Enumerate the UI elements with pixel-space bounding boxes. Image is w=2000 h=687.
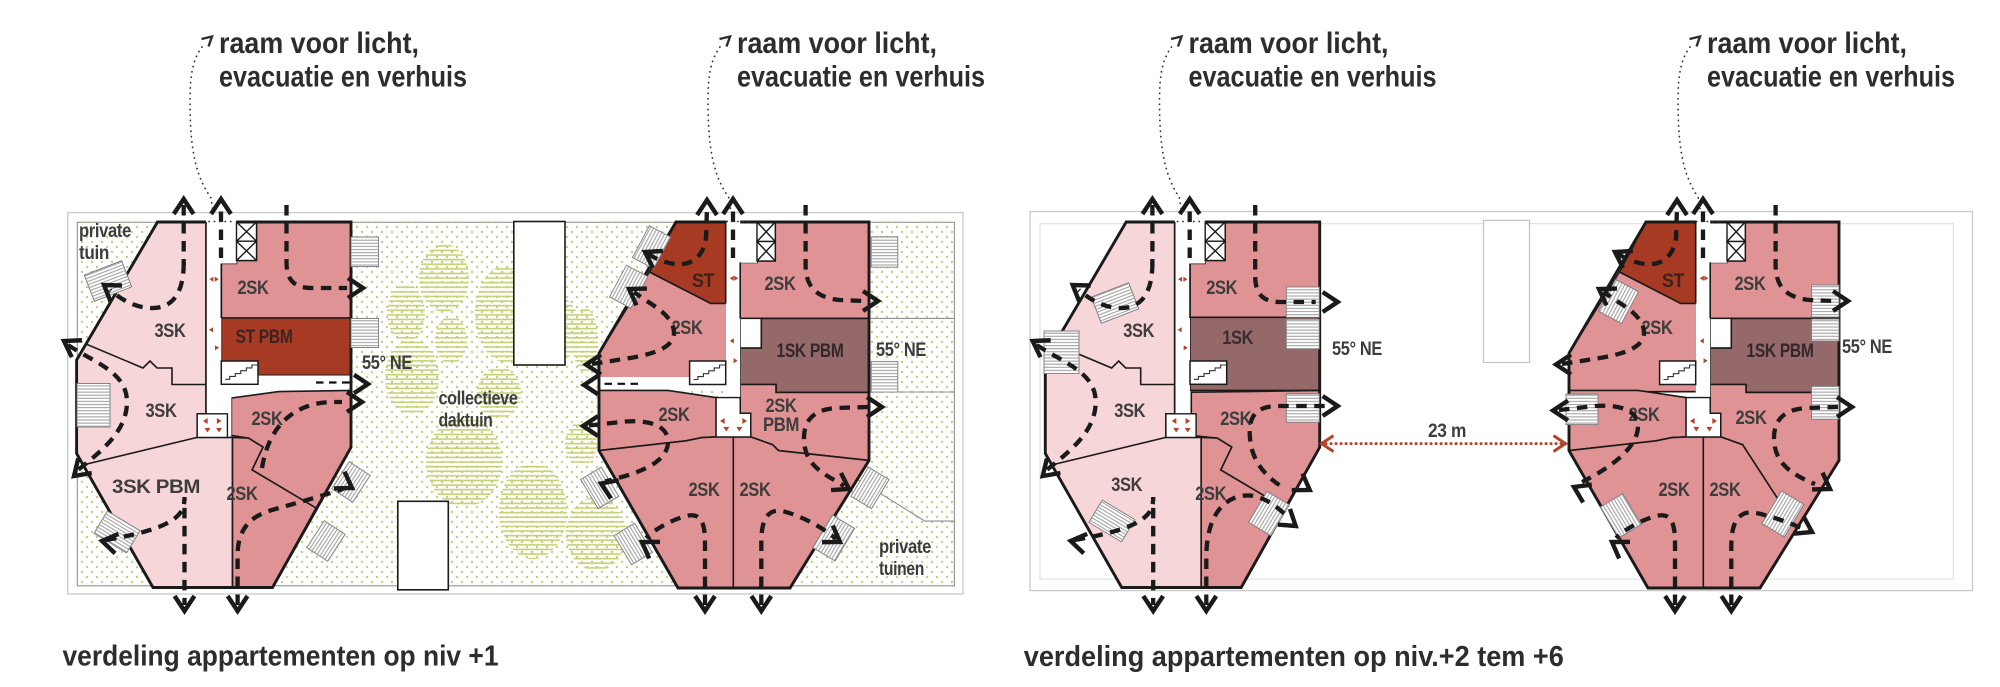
svg-text:55° NE: 55° NE (1842, 337, 1892, 358)
svg-text:3SK: 3SK (1111, 475, 1143, 496)
svg-text:2SK: 2SK (1195, 484, 1227, 505)
svg-text:collectieve: collectieve (439, 389, 518, 410)
svg-text:2SK: 2SK (672, 318, 704, 339)
svg-text:ST PBM: ST PBM (236, 327, 293, 348)
svg-text:2SK: 2SK (1735, 274, 1767, 295)
svg-text:private: private (79, 221, 131, 242)
svg-text:2SK: 2SK (1220, 409, 1252, 430)
svg-text:2SK: 2SK (1659, 480, 1691, 501)
svg-text:3SK: 3SK (146, 401, 178, 422)
svg-text:PBM: PBM (763, 415, 799, 436)
svg-text:raam voor licht,: raam voor licht, (737, 27, 937, 60)
svg-text:3SK: 3SK (1123, 321, 1155, 342)
svg-text:2SK: 2SK (766, 396, 798, 417)
svg-text:evacuatie en verhuis: evacuatie en verhuis (1707, 60, 1955, 93)
svg-text:55° NE: 55° NE (362, 353, 412, 374)
svg-text:evacuatie en verhuis: evacuatie en verhuis (737, 60, 985, 93)
svg-text:evacuatie en verhuis: evacuatie en verhuis (219, 60, 467, 93)
svg-text:verdeling appartementen op niv: verdeling appartementen op niv +1 (63, 641, 499, 673)
svg-text:2SK: 2SK (659, 405, 691, 426)
svg-text:tuin: tuin (79, 243, 109, 264)
svg-text:daktuin: daktuin (439, 411, 493, 432)
svg-text:2SK: 2SK (689, 480, 721, 501)
svg-text:2SK: 2SK (1642, 318, 1674, 339)
svg-text:tuinen: tuinen (879, 559, 924, 580)
svg-text:3SK PBM: 3SK PBM (112, 477, 200, 498)
svg-text:raam voor licht,: raam voor licht, (1189, 27, 1389, 60)
svg-text:23 m: 23 m (1428, 421, 1466, 442)
svg-text:ST: ST (692, 271, 715, 292)
svg-text:3SK: 3SK (1114, 401, 1146, 422)
svg-text:1SK PBM: 1SK PBM (777, 341, 844, 362)
svg-text:2SK: 2SK (740, 480, 772, 501)
svg-text:private: private (879, 537, 931, 558)
svg-text:verdeling appartementen op niv: verdeling appartementen op niv.+2 tem +6 (1024, 641, 1564, 673)
svg-text:3SK: 3SK (155, 321, 187, 342)
svg-text:55° NE: 55° NE (1332, 339, 1382, 360)
svg-text:1SK: 1SK (1222, 328, 1254, 349)
svg-text:2SK: 2SK (765, 274, 797, 295)
svg-text:55° NE: 55° NE (876, 340, 926, 361)
svg-text:2SK: 2SK (227, 484, 259, 505)
svg-text:2SK: 2SK (1206, 278, 1238, 299)
svg-text:raam voor licht,: raam voor licht, (1707, 27, 1907, 60)
svg-text:2SK: 2SK (238, 278, 270, 299)
svg-text:evacuatie en verhuis: evacuatie en verhuis (1189, 60, 1437, 93)
svg-text:raam voor licht,: raam voor licht, (219, 27, 419, 60)
svg-text:1SK PBM: 1SK PBM (1747, 341, 1814, 362)
svg-text:ST: ST (1662, 271, 1685, 292)
svg-text:2SK: 2SK (1736, 408, 1768, 429)
svg-text:2SK: 2SK (1710, 480, 1742, 501)
